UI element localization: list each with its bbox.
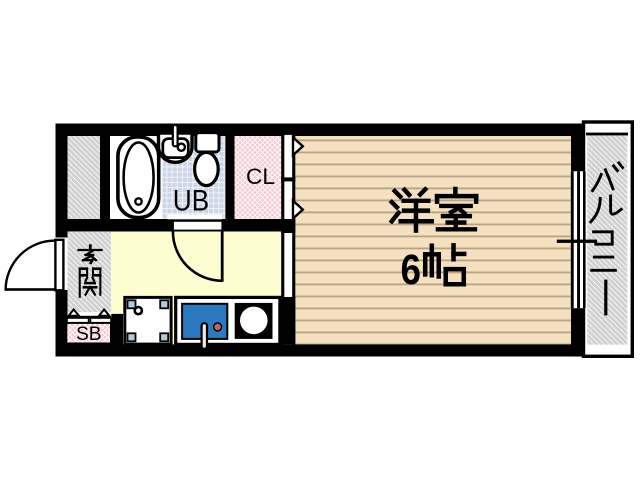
svg-text:UB: UB [173, 185, 209, 218]
svg-text:CL: CL [246, 164, 275, 189]
svg-text:SB: SB [76, 323, 101, 345]
svg-text:6: 6 [401, 247, 422, 294]
